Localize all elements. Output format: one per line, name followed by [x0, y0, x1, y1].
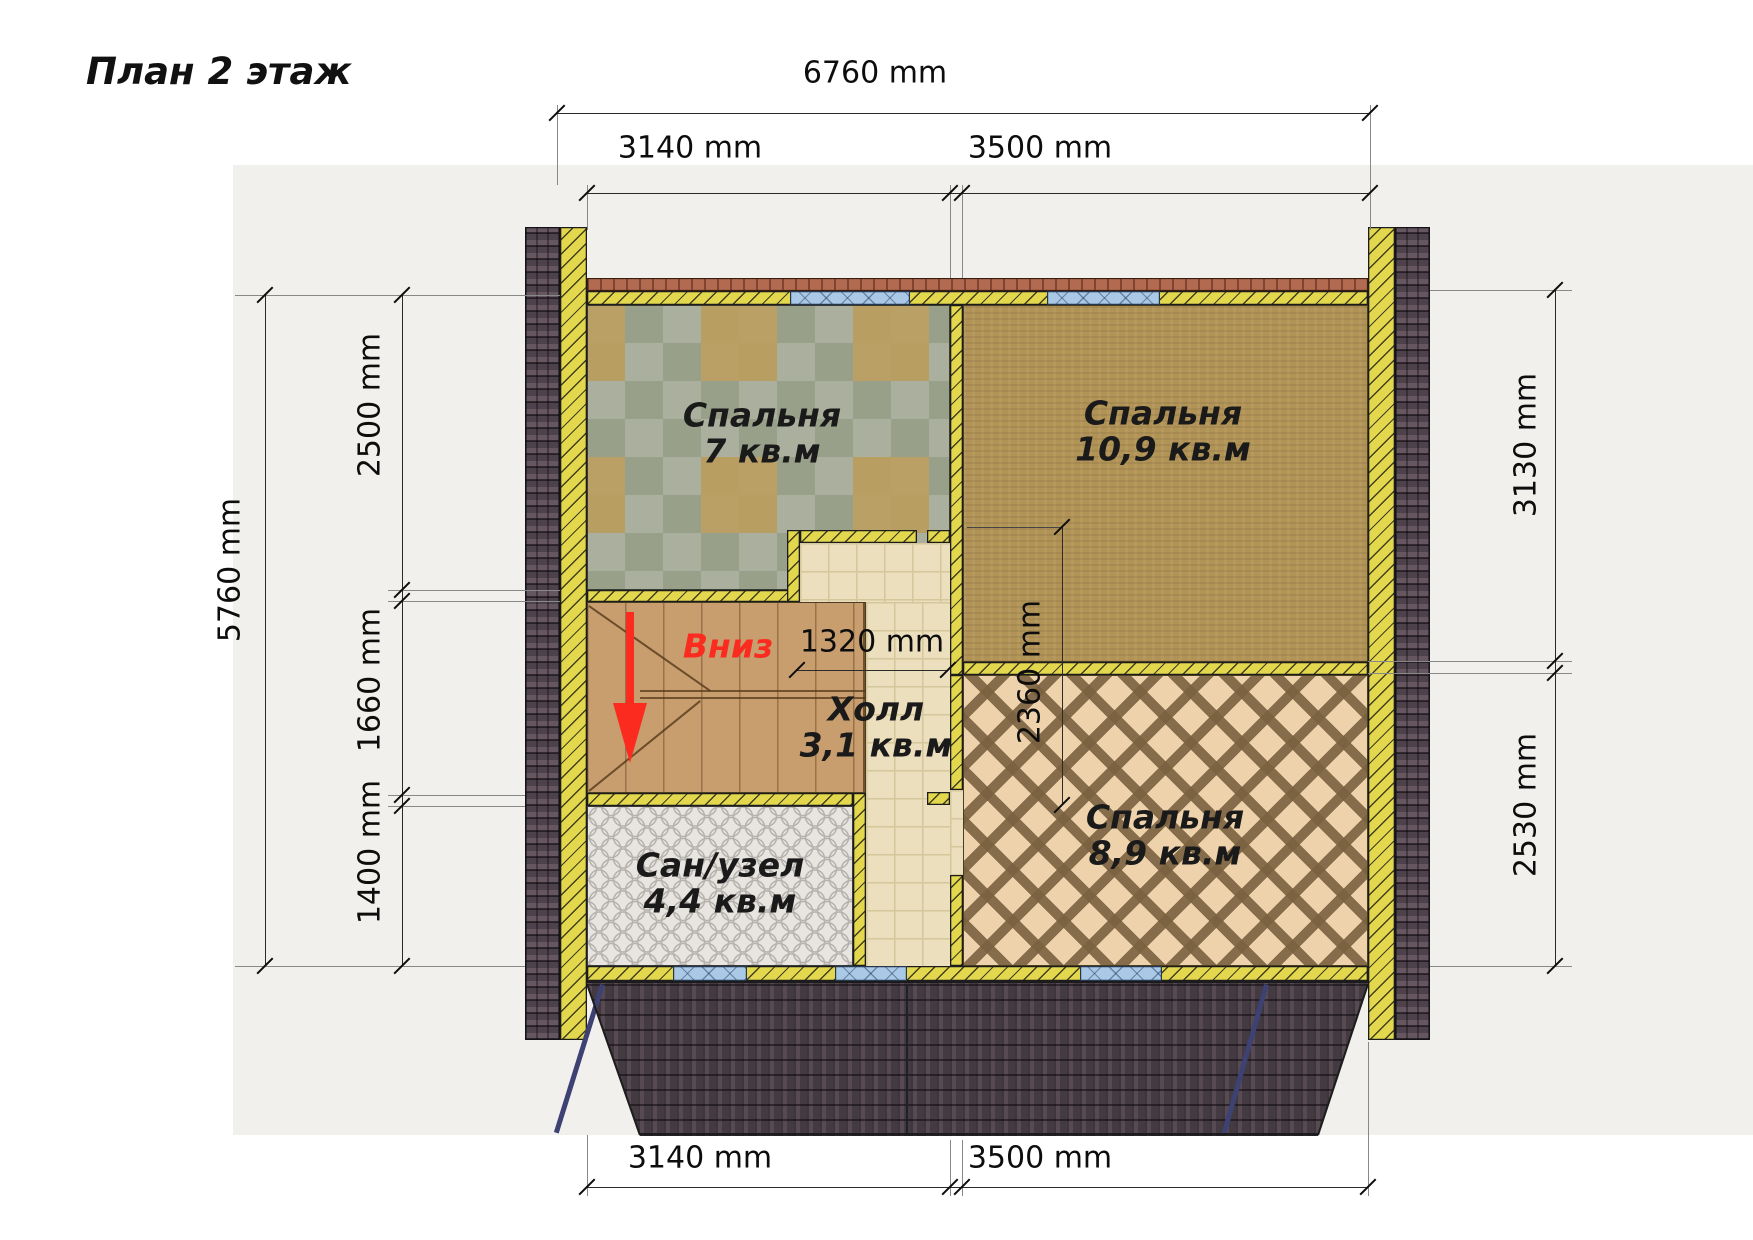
dim-label-bottom-seg1: 3140 mm	[628, 1141, 772, 1176]
stairs-direction-label: Вниз	[683, 627, 773, 666]
dim-label-left-seg2: 1660 mm	[353, 608, 388, 752]
bedroom2-name: Спальня	[1075, 396, 1251, 432]
hall-area: 3,1 кв.м	[800, 728, 953, 764]
ref-line-inner-depth	[967, 527, 1062, 528]
ext-line-bottom-right	[1368, 1042, 1369, 1196]
dim-label-left-seg1: 2500 mm	[353, 333, 388, 477]
bedroom3-label: Спальня 8,9 кв.м	[1086, 800, 1244, 873]
hall-door-opening	[950, 790, 963, 875]
bedroom3-area: 8,9 кв.м	[1086, 836, 1244, 872]
bedroom2-area: 10,9 кв.м	[1075, 432, 1251, 468]
bedroom2-label: Спальня 10,9 кв.м	[1075, 396, 1251, 469]
wall-bedroom1-notch-vertical	[787, 530, 800, 602]
ext-line-left-mid1b	[388, 601, 560, 602]
dim-line-bottom-segments	[587, 1187, 1368, 1188]
dim-label-left-seg3: 1400 mm	[353, 780, 388, 924]
wall-hall-bathroom	[853, 793, 866, 966]
roof-edge-strip-left	[525, 227, 560, 1040]
dim-label-right-seg2: 2530 mm	[1509, 733, 1544, 877]
wall-stairs-bathroom	[587, 793, 853, 806]
dim-line-hall-width	[797, 670, 948, 671]
window-bottom-1	[673, 966, 747, 981]
hall-label: Холл 3,1 кв.м	[800, 692, 953, 765]
ext-line-top-mid-b	[962, 185, 963, 278]
dim-line-top-segments	[587, 193, 1370, 194]
dim-label-top-seg2: 3500 mm	[968, 131, 1112, 166]
bathroom-area: 4,4 кв.м	[636, 884, 805, 920]
wall-bedroom1-notch-horizontal	[800, 530, 917, 543]
roof-bottom	[560, 983, 1430, 1136]
ext-line-right-midb	[1368, 673, 1572, 674]
ext-line-top-right	[1370, 105, 1371, 230]
bathroom-name: Сан/узел	[636, 848, 805, 884]
window-bottom-2	[835, 966, 907, 981]
roof-edge-strip-right	[1395, 227, 1430, 1040]
bedroom3-name: Спальня	[1086, 800, 1244, 836]
wall-bedroom1-bottom	[587, 590, 800, 602]
bedroom1-label: Спальня 7 кв.м	[683, 398, 841, 471]
stairs-down-arrow-shaft	[626, 612, 634, 707]
ext-line-left-mid2a	[388, 795, 525, 796]
wall-column-left	[560, 227, 587, 1040]
dim-line-right-segments	[1555, 290, 1556, 966]
roof-center-seam	[906, 984, 908, 1134]
hall-floor-upper	[800, 543, 950, 602]
bedroom1-area: 7 кв.м	[683, 434, 841, 470]
ext-line-top-mid-a	[950, 185, 951, 278]
hall-name: Холл	[800, 692, 953, 728]
ext-line-left-top	[235, 295, 560, 296]
stairs-down-arrow-head	[613, 703, 647, 763]
dim-label-hall-width: 1320 mm	[800, 625, 944, 660]
roof-bottom-edge	[640, 1133, 1318, 1135]
bedroom1-name: Спальня	[683, 398, 841, 434]
ext-line-top-left-outer	[557, 105, 558, 185]
window-bottom-3	[1080, 966, 1162, 981]
wall-top	[587, 291, 1368, 305]
ext-line-right-mida	[1368, 661, 1572, 662]
floor-plan-page: План 2 этаж Вниз	[0, 0, 1753, 1240]
dim-line-left-total	[265, 295, 266, 966]
roof-ridge-band-top	[587, 278, 1368, 291]
window-top-2	[1047, 291, 1160, 305]
wall-door-jamb	[927, 792, 950, 805]
dim-label-inner-depth: 2360 mm	[1013, 600, 1048, 744]
roof-top-edge	[587, 981, 1368, 983]
page-title: План 2 этаж	[86, 50, 351, 93]
dim-label-bottom-seg2: 3500 mm	[968, 1141, 1112, 1176]
ext-line-left-bottom	[235, 966, 525, 967]
dim-label-top-total: 6760 mm	[803, 56, 947, 91]
window-top-1	[790, 291, 910, 305]
dim-label-left-total: 5760 mm	[213, 498, 248, 642]
ext-line-left-mid2b	[388, 806, 525, 807]
dim-line-inner-depth	[1062, 527, 1063, 805]
dim-line-top-total	[557, 113, 1370, 114]
wall-divider-bedrooms-vertical	[950, 305, 963, 675]
wall-column-right	[1368, 227, 1395, 1040]
ext-line-left-mid1a	[388, 590, 560, 591]
dim-line-left-segments	[402, 295, 403, 966]
dim-label-right-seg1: 3130 mm	[1509, 373, 1544, 517]
wall-door-stub	[927, 530, 950, 543]
dim-label-top-seg1: 3140 mm	[618, 131, 762, 166]
wall-hall-bedroom3-lower	[950, 875, 963, 966]
bathroom-label: Сан/узел 4,4 кв.м	[636, 848, 805, 921]
